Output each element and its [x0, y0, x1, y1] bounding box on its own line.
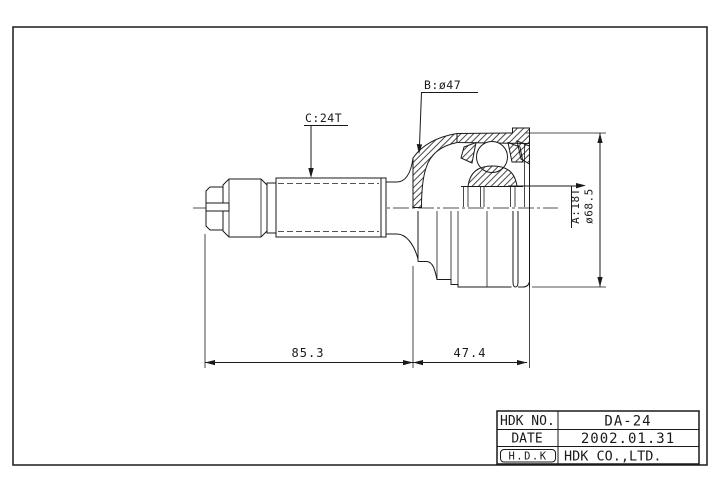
- dim-shaft-length: 85.3: [292, 346, 325, 360]
- bell-housing-external: [418, 211, 530, 287]
- arrowhead: [413, 360, 423, 365]
- snap-ring-groove: [513, 211, 518, 287]
- date-label: DATE: [511, 432, 542, 447]
- drawing-sheet: C:24T B:ø47 A:18T ø68.5 85.3 47: [0, 0, 720, 480]
- sheet-border: [13, 27, 707, 465]
- cage-window-left: [461, 143, 476, 164]
- arrowhead: [597, 133, 602, 143]
- arrowhead: [403, 360, 413, 365]
- hdk-logo: H.D.K: [508, 451, 547, 463]
- company-name: HDK CO.,LTD.: [564, 449, 662, 465]
- label-spline-leader: C:24T: [304, 111, 348, 178]
- label-outer-diameter: ø68.5: [583, 188, 596, 224]
- label-serration-leader: A:18T ø68.5: [508, 183, 596, 228]
- dimension-lengths: 85.3 47.4: [205, 234, 530, 368]
- title-block: HDK NO. DA-24 DATE 2002.01.31 H.D.K HDK …: [497, 411, 699, 465]
- arrowhead: [597, 277, 602, 287]
- label-serration-count: A:18T: [569, 188, 582, 224]
- date-value: 2002.01.31: [581, 431, 675, 447]
- part-no-label: HDK NO.: [500, 414, 555, 429]
- label-boot-diameter: B:ø47: [424, 78, 461, 92]
- arrowhead: [308, 168, 313, 178]
- part-no-value: DA-24: [604, 414, 651, 430]
- label-spline-count: C:24T: [305, 111, 342, 125]
- cv-joint-technical-drawing: C:24T B:ø47 A:18T ø68.5 85.3 47: [0, 0, 720, 480]
- inner-race: [468, 166, 517, 187]
- dim-joint-width: 47.4: [454, 346, 487, 360]
- arrowhead: [576, 183, 586, 188]
- arrowhead: [517, 360, 527, 365]
- arrowhead: [205, 360, 215, 365]
